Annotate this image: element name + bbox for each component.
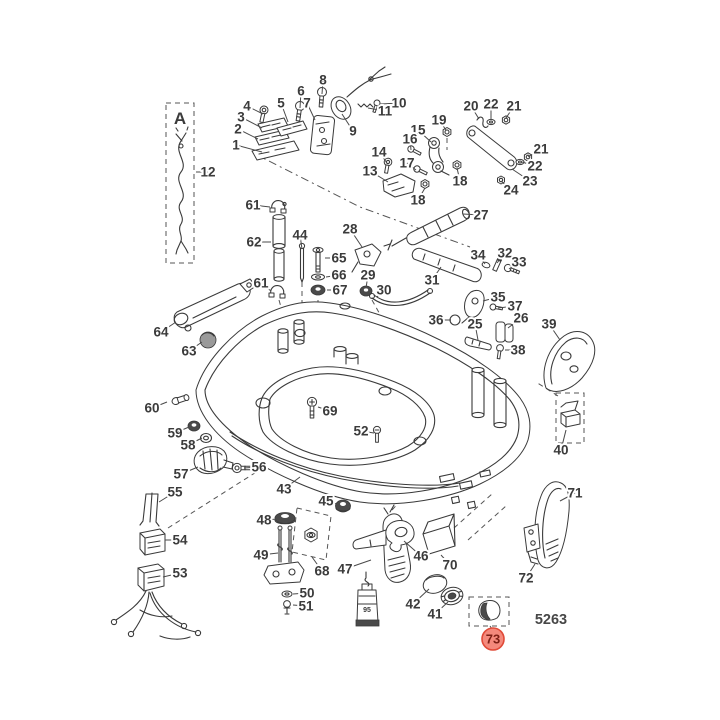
part-callout-22[interactable]: 22 (527, 159, 542, 174)
part-callout-7[interactable]: 7 (303, 96, 311, 111)
part-sketch-bracket-cluster (382, 138, 461, 198)
part-callout-40[interactable]: 40 (553, 443, 568, 458)
part-callout-12[interactable]: 12 (200, 165, 215, 180)
part-callout-52[interactable]: 52 (353, 424, 368, 439)
part-callout-13[interactable]: 13 (362, 164, 378, 179)
part-callout-19[interactable]: 19 (431, 113, 446, 128)
part-callout-46[interactable]: 46 (413, 549, 429, 564)
part-callout-72[interactable]: 72 (518, 571, 533, 586)
part-callout-21[interactable]: 21 (533, 142, 549, 157)
part-callout-18[interactable]: 18 (452, 174, 468, 189)
part-callout-63[interactable]: 63 (181, 344, 197, 359)
part-callout-16[interactable]: 16 (402, 132, 418, 147)
part-callout-51[interactable]: 51 (298, 599, 314, 614)
part-callout-65[interactable]: 65 (331, 251, 347, 266)
part-callout-61[interactable]: 61 (245, 198, 261, 213)
part-callout-28[interactable]: 28 (342, 222, 358, 237)
part-sketch-plates (252, 118, 307, 160)
part-callout-41[interactable]: 41 (427, 607, 443, 622)
part-callout-32[interactable]: 32 (497, 246, 512, 261)
part-callout-21[interactable]: 21 (506, 99, 522, 114)
parts-diagram-page: A (0, 0, 720, 720)
part-callout-17[interactable]: 17 (399, 156, 414, 171)
part-callout-8[interactable]: 8 (319, 73, 327, 88)
part-callout-27[interactable]: 27 (473, 208, 488, 223)
leader-line-1 (236, 145, 262, 152)
highlight-73[interactable]: 73 (482, 628, 504, 650)
inset-label: A (174, 109, 186, 128)
diagram-canvas: A (0, 0, 720, 720)
part-callout-59[interactable]: 59 (167, 426, 182, 441)
part-callout-70[interactable]: 70 (442, 558, 457, 573)
part-callout-20[interactable]: 20 (463, 99, 478, 114)
highlight-label[interactable]: 73 (486, 632, 500, 647)
part-sketch-bottom-cowl (196, 302, 530, 512)
part-callout-38[interactable]: 38 (510, 343, 526, 358)
part-callout-58[interactable]: 58 (180, 438, 196, 453)
part-callout-34[interactable]: 34 (470, 248, 486, 263)
part-callout-60[interactable]: 60 (144, 401, 159, 416)
part-sketch-side-panel (524, 482, 569, 568)
lube-tube-label: 95 (363, 607, 371, 614)
part-callout-67[interactable]: 67 (332, 283, 347, 298)
part-callout-4[interactable]: 4 (243, 99, 251, 114)
part-callout-14[interactable]: 14 (371, 145, 387, 160)
part-callout-48[interactable]: 48 (256, 513, 272, 528)
part-sketch-bracket-39 (544, 331, 595, 391)
part-sketch-cube-54 (140, 529, 165, 555)
part-sketch-plug-73 (469, 597, 509, 629)
part-callout-1[interactable]: 1 (232, 138, 240, 153)
part-callout-11[interactable]: 11 (378, 104, 393, 119)
part-callout-35[interactable]: 35 (490, 290, 506, 305)
part-callout-25[interactable]: 25 (467, 317, 483, 332)
part-callout-66[interactable]: 66 (331, 268, 347, 283)
part-callout-56[interactable]: 56 (251, 460, 267, 475)
part-callout-37[interactable]: 37 (507, 299, 522, 314)
part-callout-30[interactable]: 30 (376, 283, 391, 298)
part-callout-68[interactable]: 68 (314, 564, 330, 579)
part-sketch-block-40 (556, 393, 584, 443)
part-callout-31[interactable]: 31 (424, 273, 440, 288)
part-callout-9[interactable]: 9 (349, 124, 357, 139)
part-callout-22[interactable]: 22 (483, 97, 498, 112)
part-callout-55[interactable]: 55 (167, 485, 183, 500)
part-callout-43[interactable]: 43 (276, 482, 292, 497)
part-callout-47[interactable]: 47 (337, 562, 352, 577)
drawing-number: 5263 (535, 612, 567, 628)
part-callout-69[interactable]: 69 (322, 404, 337, 419)
part-callout-33[interactable]: 33 (511, 255, 527, 270)
part-sketch-clamp-tube-column (269, 201, 325, 298)
part-callout-49[interactable]: 49 (253, 548, 268, 563)
part-callout-18[interactable]: 18 (410, 193, 426, 208)
part-callout-42[interactable]: 42 (405, 597, 420, 612)
part-callout-23[interactable]: 23 (522, 174, 538, 189)
part-callout-61[interactable]: 61 (253, 276, 269, 291)
part-callout-29[interactable]: 29 (360, 268, 375, 283)
part-callout-10[interactable]: 10 (391, 96, 406, 111)
part-callout-54[interactable]: 54 (172, 533, 188, 548)
part-callout-71[interactable]: 71 (567, 486, 583, 501)
part-callout-57[interactable]: 57 (173, 467, 188, 482)
part-callout-62[interactable]: 62 (246, 235, 261, 250)
part-callout-44[interactable]: 44 (292, 228, 308, 243)
part-callout-36[interactable]: 36 (428, 313, 444, 328)
part-callout-24[interactable]: 24 (503, 183, 519, 198)
part-callout-5[interactable]: 5 (277, 96, 285, 111)
part-callout-45[interactable]: 45 (318, 494, 334, 509)
part-callout-64[interactable]: 64 (153, 325, 169, 340)
part-callout-39[interactable]: 39 (541, 317, 556, 332)
part-callout-53[interactable]: 53 (172, 566, 188, 581)
